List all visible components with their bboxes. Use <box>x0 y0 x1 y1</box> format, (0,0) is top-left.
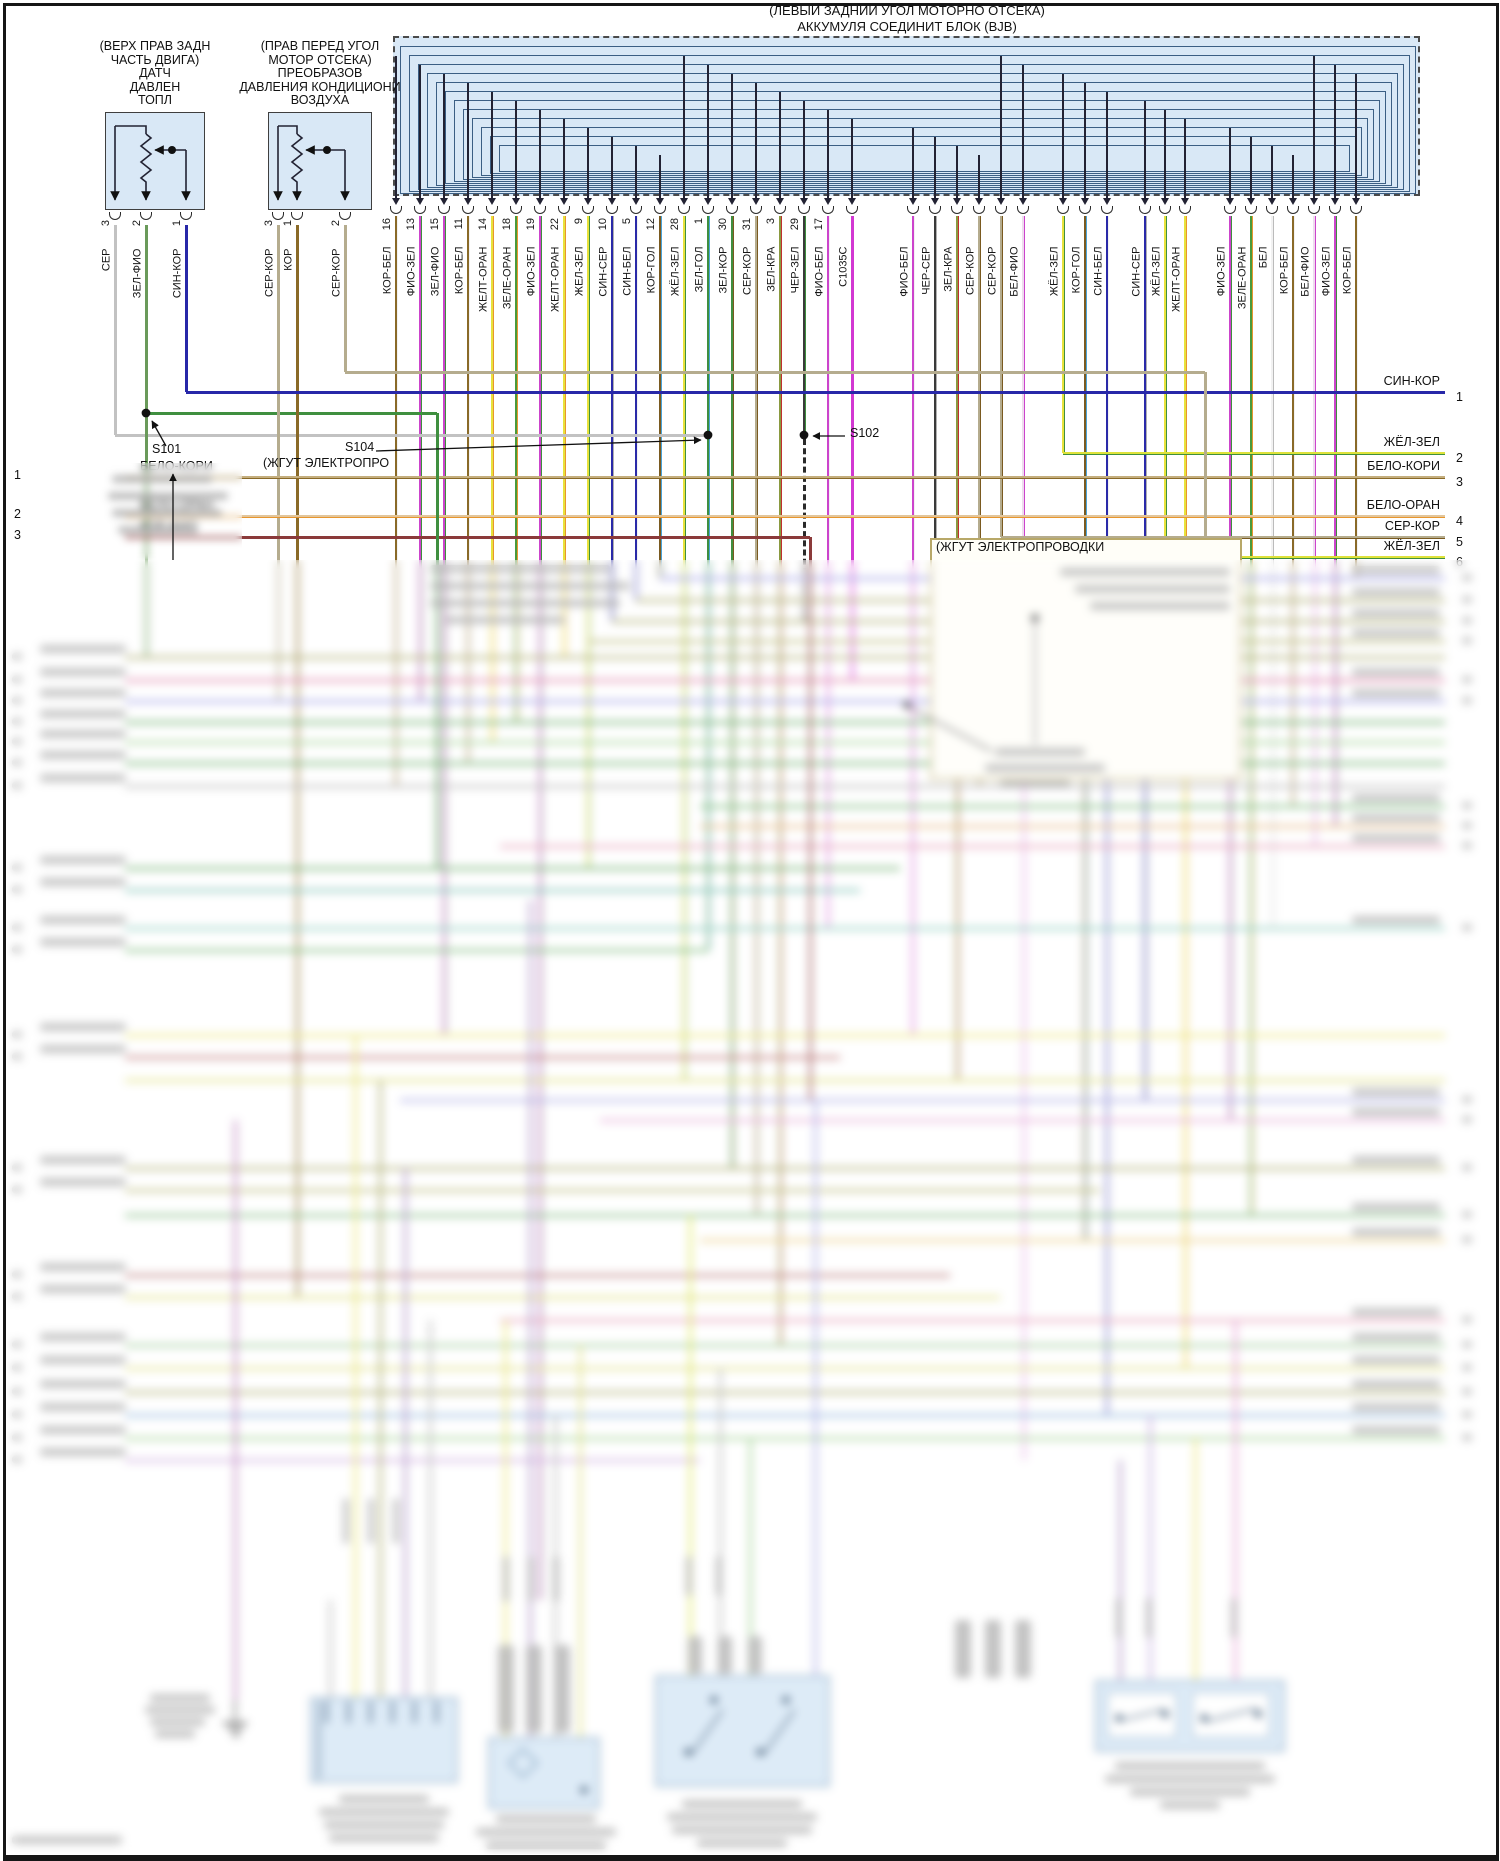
junction-dot <box>782 1696 790 1704</box>
connector-pin-arc <box>140 212 152 220</box>
bjb-wire <box>912 216 915 1035</box>
blurred-text-line <box>118 526 198 534</box>
blurred-wire-row <box>500 845 1445 848</box>
blurred-right-label <box>1352 1108 1440 1116</box>
bjb-wire-label: СИН-БЕЛ <box>620 246 634 361</box>
bjb-pin-arrow-line <box>443 74 445 198</box>
connector-pin-arc <box>1101 206 1113 214</box>
blurred-wire-row <box>125 889 860 892</box>
bjb-wire-label: БЕЛ-ФИО <box>1298 246 1312 361</box>
junction-dot <box>580 1786 588 1794</box>
blurred-right-number <box>1462 1116 1472 1123</box>
bjb-wire <box>755 216 758 1215</box>
blurred-left-label <box>40 1380 126 1388</box>
bjb-pin-number: 10 <box>596 218 610 248</box>
blurred-text-line <box>12 1836 122 1844</box>
connector-pin-arc <box>1329 206 1341 214</box>
connector-tick <box>369 1701 372 1723</box>
arrow-head-icon <box>1141 198 1149 205</box>
arrow-head-icon <box>1081 198 1089 205</box>
blurred-left-number <box>12 676 22 683</box>
connector-block <box>526 1645 542 1733</box>
blurred-left-number <box>12 759 22 766</box>
blurred-wire-row <box>125 679 1445 682</box>
blurred-text-line <box>430 565 610 573</box>
blurred-wire-row <box>125 1056 840 1059</box>
bjb-wire-label: ЧЕР-ЗЕЛ <box>788 246 802 361</box>
blurred-left-label <box>40 1045 126 1053</box>
blurred-right-label <box>1352 1156 1440 1164</box>
bjb-wire <box>827 216 830 928</box>
blurred-text-line <box>430 582 630 590</box>
blurred-vertical-label <box>503 1556 509 1602</box>
blurred-right-number <box>1462 842 1472 849</box>
blurred-wire-vertical <box>234 1120 237 1700</box>
blurred-right-label <box>1352 1203 1440 1211</box>
bjb-wire-label: ЗЕЛ-КОР <box>716 246 730 361</box>
blurred-wire-vertical <box>809 537 812 1100</box>
arrow-head-icon <box>953 198 961 205</box>
blurred-left-label <box>40 1403 126 1411</box>
blurred-wire-vertical <box>1149 1415 1152 1680</box>
bjb-pin-arrow-line <box>1164 110 1166 198</box>
blurred-right-number <box>1462 1316 1472 1323</box>
component-wire-label: СЕР-КОР <box>262 248 276 363</box>
right-row-label: СИН-КОР <box>1320 374 1440 388</box>
connector-block <box>748 1636 762 1674</box>
connector-pin-arc <box>907 206 919 214</box>
bjb-wire-label: ЗЕЛ-КРА <box>764 246 778 361</box>
blurred-left-label <box>40 668 126 676</box>
diagram-content: (ЛЕВЫЙ ЗАДНИЙ УГОЛ МОТОРНО ОТСЕКА) АККУМ… <box>0 0 1500 1861</box>
blurred-left-number <box>12 1164 22 1171</box>
bjb-pin-arrow-line <box>659 155 661 198</box>
bjb-wire-label: ФИО-БЕЛ <box>897 246 911 361</box>
arrow-head-icon <box>800 198 808 205</box>
bjb-pin-number: 3 <box>764 218 778 248</box>
arrow-head-icon <box>392 198 400 205</box>
right-row-label: ЖЁЛ-ЗЕЛ <box>1320 435 1440 449</box>
bjb-wire-label: ФИО-ЗЕЛ <box>1214 246 1228 361</box>
bjb-pin-number: 28 <box>668 218 682 248</box>
blurred-left-label <box>40 774 126 782</box>
blurred-left-number <box>12 697 22 704</box>
arrow-head-icon <box>909 198 917 205</box>
connector-pin-arc <box>1017 206 1029 214</box>
component-pin-number: 1 <box>170 220 184 250</box>
junction-dot <box>1115 1714 1123 1722</box>
bjb-wire <box>587 216 590 868</box>
junction-dot <box>684 1748 692 1756</box>
bjb-pin-arrow-line <box>1184 119 1186 198</box>
blurred-left-number <box>12 864 22 871</box>
right-row-label: БЕЛО-ОРАН <box>1320 498 1440 512</box>
blurred-vertical-label <box>1231 1598 1237 1638</box>
left-row-number: 1 <box>14 468 21 482</box>
connector-pin-arc <box>702 206 714 214</box>
connector-pin-arc <box>1079 206 1091 214</box>
harness-note: (ЖГУТ ЭЛЕКТРОПРОВОДКИ <box>936 540 1104 554</box>
left-row-number: 3 <box>14 528 21 542</box>
blurred-left-label <box>40 645 126 653</box>
blurred-wire-vertical <box>689 1215 692 1675</box>
blurred-left-number <box>12 1053 22 1060</box>
blurred-vertical-label <box>528 1556 534 1602</box>
bjb-wire-label: ЗЕЛЕ-ОРАН <box>500 246 514 361</box>
ground-symbol <box>229 1728 242 1731</box>
blurred-left-number <box>12 1293 22 1300</box>
arrow-head-icon <box>464 198 472 205</box>
bjb-wire-label: СЕР-КОР <box>740 246 754 361</box>
bjb-wire <box>1164 216 1167 557</box>
callout-line <box>1034 622 1036 745</box>
arrow-head-icon <box>997 198 1005 205</box>
blurred-text-line <box>995 748 1085 756</box>
right-row-label: БЕЛО-КОРИ <box>1320 459 1440 473</box>
bjb-pin-arrow-line <box>1229 128 1231 198</box>
connector-tick <box>318 1701 320 1779</box>
blurred-right-number <box>1462 617 1472 624</box>
blurred-text-line <box>112 475 212 483</box>
bjb-pin-arrow-line <box>827 110 829 198</box>
connector-tick <box>347 1701 350 1723</box>
bjb-wire-label: ЖЁЛ-ЗЕЛ <box>1149 246 1163 361</box>
blurred-wire-vertical <box>436 413 439 868</box>
component-pin-number: 2 <box>130 220 144 250</box>
blurred-wire-row <box>125 1367 1445 1370</box>
blurred-right-number <box>1462 1388 1472 1395</box>
blurred-text-line <box>1115 1762 1265 1770</box>
blurred-left-label <box>40 1333 126 1341</box>
blurred-wire-vertical <box>379 1080 382 1697</box>
potentiometer-symbol <box>268 112 372 210</box>
blurred-text-line <box>445 616 565 624</box>
blurred-left-number <box>12 1434 22 1441</box>
wire-horizontal <box>345 371 1205 374</box>
blurred-text-line <box>329 1834 439 1842</box>
blurred-right-label <box>1352 1356 1440 1364</box>
bjb-pin-arrow-line <box>611 137 613 198</box>
bjb-wire-label: C1035C <box>836 246 850 361</box>
bjb-pin-arrow-line <box>978 155 980 198</box>
blurred-text-line <box>1075 585 1230 593</box>
blurred-right-number <box>1462 1164 1472 1171</box>
bjb-pin-number: 11 <box>452 218 466 248</box>
blurred-text-line <box>155 1730 195 1738</box>
connector-pin-arc <box>1266 206 1278 214</box>
blurred-vertical-label <box>716 1556 722 1596</box>
blurred-right-number <box>1462 822 1472 829</box>
blurred-text-line <box>1105 1775 1275 1783</box>
blurred-right-label <box>1352 1088 1440 1096</box>
bjb-pin-arrow-line <box>707 65 709 198</box>
bjb-wire <box>515 216 518 722</box>
blurred-wire-row <box>125 700 1445 703</box>
blurred-wire-vertical <box>354 1035 357 1697</box>
blurred-right-number <box>1462 1364 1472 1371</box>
connector-pin-arc <box>654 206 666 214</box>
blurred-right-label <box>1352 668 1440 676</box>
arrow-head-icon <box>1268 198 1276 205</box>
arrow-head-icon <box>440 198 448 205</box>
bjb-pin-arrow-line <box>755 83 757 198</box>
component-pin-number: 3 <box>262 220 276 250</box>
connector-pin-arc <box>798 206 810 214</box>
bjb-pin-number: 12 <box>644 218 658 248</box>
bjb-wire-label: КОР-ГОЛ <box>644 246 658 361</box>
blurred-left-label <box>40 1426 126 1434</box>
component-label-line: ВОЗДУХА <box>210 94 430 108</box>
junction-dot <box>1200 1714 1208 1722</box>
connector-pin-arc <box>973 206 985 214</box>
left-row-number: 2 <box>14 507 21 521</box>
connector-block <box>1015 1620 1031 1678</box>
bjb-wire <box>803 216 806 435</box>
bottom-component-box-2 <box>488 1737 600 1809</box>
bjb-pin-arrow-line <box>491 92 493 198</box>
blurred-wire-row <box>125 1344 1445 1347</box>
ground-symbol <box>234 1700 236 1722</box>
blurred-right-label <box>1352 1380 1440 1388</box>
bjb-wire <box>1022 216 1025 1460</box>
bjb-wire-label: КОР-БЕЛ <box>1340 246 1354 361</box>
arrow-head-icon <box>824 198 832 205</box>
ground-symbol <box>233 1734 239 1737</box>
bjb-wire <box>1062 216 1065 453</box>
blurred-wire-row <box>125 1079 1445 1082</box>
connector-pin-arc <box>1245 206 1257 214</box>
connector-pin-arc <box>726 206 738 214</box>
connector-pin-arc <box>1224 206 1236 214</box>
connector-pin-arc <box>438 206 450 214</box>
blurred-left-label <box>40 878 126 886</box>
connector-block <box>718 1636 732 1674</box>
connector-pin-arc <box>750 206 762 214</box>
connector-pin-arc <box>414 206 426 214</box>
bjb-wire <box>611 216 614 621</box>
splice-label-s104: S104 <box>345 440 374 454</box>
blurred-left-number <box>12 1031 22 1038</box>
connector-pin-arc <box>180 212 192 220</box>
blurred-left-label <box>40 710 126 718</box>
connector-pin-arc <box>630 206 642 214</box>
wire-vertical <box>114 225 117 435</box>
connector-pin-arc <box>1287 206 1299 214</box>
arrow-head-icon <box>416 198 424 205</box>
bjb-pin-arrow-line <box>779 92 781 198</box>
wire-dashed-continuation <box>803 439 806 620</box>
bjb-pin-number: 5 <box>620 218 634 248</box>
blurred-right-number <box>1462 1236 1472 1243</box>
bjb-pin-number: 13 <box>404 218 418 248</box>
blurred-text-line <box>672 1826 812 1834</box>
blurred-text-line <box>697 1839 787 1847</box>
connector-pin-arc <box>951 206 963 214</box>
bjb-wire-label: ЖЁЛ-ЗЕЛ <box>1047 246 1061 361</box>
blurred-wire-row <box>125 1167 1445 1170</box>
blurred-text-line <box>324 1821 444 1829</box>
blurred-text-line <box>496 1815 596 1823</box>
bjb-pin-arrow-line <box>467 83 469 198</box>
blurred-wire-row <box>125 785 1445 788</box>
bjb-wire-label: ЖЕЛТ-ОРАН <box>476 246 490 361</box>
bjb-pin-arrow-line <box>1355 74 1357 198</box>
potentiometer-symbol <box>105 112 205 210</box>
blurred-right-label <box>1352 1333 1440 1341</box>
connector-block <box>955 1620 971 1678</box>
blurred-right-label <box>1352 814 1440 822</box>
blurred-text-line <box>108 492 228 500</box>
bjb-pin-arrow-line <box>1313 56 1315 198</box>
blurred-left-label <box>40 938 126 946</box>
blurred-right-label <box>1352 834 1440 842</box>
bjb-wire <box>635 216 638 600</box>
blurred-left-number <box>12 1388 22 1395</box>
bjb-pin-number: 9 <box>572 218 586 248</box>
bjb-pin-arrow-line <box>539 110 541 198</box>
connector-pin-arc <box>1308 206 1320 214</box>
blurred-left-number <box>12 782 22 789</box>
connector-tick <box>413 1701 416 1723</box>
bjb-pin-number: 22 <box>548 218 562 248</box>
junction-dot <box>1031 614 1039 622</box>
bjb-pin-arrow-line <box>1062 74 1064 198</box>
bjb-wire-label: СЕР-КОР <box>985 246 999 361</box>
right-row-number: 6 <box>1456 555 1463 569</box>
bjb-pin-arrow-line <box>1292 155 1294 198</box>
bjb-wire-label: КОР-БЕЛ <box>452 246 466 361</box>
arrow-head-icon <box>608 198 616 205</box>
bjb-pin-number: 1 <box>692 218 706 248</box>
wire-row-right <box>125 476 1445 479</box>
blurred-vertical-label <box>1146 1598 1152 1638</box>
connector-pin-arc <box>558 206 570 214</box>
arrow-head-icon <box>975 198 983 205</box>
wire-row-right <box>1063 452 1445 455</box>
blurred-right-number <box>1462 697 1472 704</box>
component-wire-label: СЕР-КОР <box>329 248 343 363</box>
bjb-wire-label: БЕЛ <box>1256 246 1270 361</box>
junction-dot <box>1254 1710 1262 1718</box>
junction-dot <box>710 1696 718 1704</box>
bjb-wire-label: ЗЕЛЕ-ОРАН <box>1235 246 1249 361</box>
blurred-wire-row <box>125 721 1445 724</box>
blurred-wire-row <box>500 1319 1445 1322</box>
bjb-pin-number: 31 <box>740 218 754 248</box>
bjb-wire-label: КОР-ГОЛ <box>1069 246 1083 361</box>
blurred-wire-row <box>125 1437 1445 1440</box>
blurred-vertical-label <box>686 1556 692 1596</box>
component-pin-number: 3 <box>99 220 113 250</box>
bjb-pin-arrow-line <box>1271 146 1273 198</box>
blurred-text-line <box>430 599 620 607</box>
bjb-wire-label: ФИО-ЗЕЛ <box>404 246 418 361</box>
blurred-wire-row <box>125 741 1445 744</box>
bjb-title-line2: АККУМУЛЯ СОЕДИНИТ БЛОК (BJB) <box>607 19 1207 35</box>
blurred-left-number <box>12 946 22 953</box>
component-wire-label: ЗЕЛ-ФИО <box>130 248 144 363</box>
bjb-wire-label: ЖЁЛ-ЗЕЛ <box>668 246 682 361</box>
bjb-busbar-rect <box>499 145 1350 172</box>
bjb-wire <box>707 216 710 950</box>
blurred-left-number <box>12 1271 22 1278</box>
component-pin-number: 2 <box>329 220 343 250</box>
blurred-right-label <box>1352 609 1440 617</box>
bjb-wire-label: ЗЕЛ-ГОЛ <box>692 246 706 361</box>
wire-vertical <box>296 225 299 1297</box>
wire-vertical <box>145 225 148 657</box>
connector-pin-arc <box>390 206 402 214</box>
connector-block <box>554 1645 570 1733</box>
connector-pin-arc <box>272 212 284 220</box>
blurred-left-label <box>40 1356 126 1364</box>
blurred-wire-row <box>125 1274 950 1277</box>
blurred-left-number <box>12 1411 22 1418</box>
bjb-pin-arrow-line <box>683 56 685 198</box>
component-label-line: (ПРАВ ПЕРЕД УГОЛ <box>210 40 430 54</box>
bjb-wire <box>443 216 446 1035</box>
right-row-label: СЕР-КОР <box>1320 519 1440 533</box>
bjb-pin-number: 15 <box>428 218 442 248</box>
arrow-head-icon <box>1181 198 1189 205</box>
bjb-pin-arrow-line <box>1000 56 1002 198</box>
arrow-head-icon <box>632 198 640 205</box>
blurred-wire-row <box>125 1296 1000 1299</box>
blurred-wire-row <box>125 1414 1445 1417</box>
component-label-line: МОТОР ОТСЕКА) <box>210 54 430 68</box>
bjb-title-line1: (ЛЕВЫЙ ЗАДНИЙ УГОЛ МОТОРНО ОТСЕКА) <box>607 3 1207 19</box>
blurred-wire-row <box>125 1214 1445 1217</box>
connector-pin-arc <box>582 206 594 214</box>
blurred-wire-vertical <box>814 1100 817 1675</box>
blurred-left-label <box>40 1285 126 1293</box>
connector-pin-arc <box>995 206 1007 214</box>
arrow-head-icon <box>656 198 664 205</box>
bjb-wire <box>1184 216 1187 1368</box>
arrow-head-icon <box>704 198 712 205</box>
blurred-left-number <box>12 718 22 725</box>
bjb-wire-label: СИН-БЕЛ <box>1091 246 1105 361</box>
bjb-pin-number: 17 <box>812 218 826 248</box>
connector-pin-arc <box>510 206 522 214</box>
arrow-head-icon <box>488 198 496 205</box>
right-row-number: 5 <box>1456 535 1463 549</box>
bjb-pin-arrow-line <box>912 128 914 198</box>
blurred-wire-row <box>700 1239 1445 1242</box>
arrow-head-icon <box>680 198 688 205</box>
bjb-pin-arrow-line <box>1334 65 1336 198</box>
bjb-wire-label: КОР-БЕЛ <box>380 246 394 361</box>
blurred-wire-vertical <box>579 1345 582 1737</box>
blurred-right-number <box>1462 676 1472 683</box>
blurred-left-number <box>12 738 22 745</box>
bjb-pin-arrow-line <box>1084 83 1086 198</box>
bjb-wire-label: ФИО-ЗЕЛ <box>1319 246 1333 361</box>
connector-tick <box>391 1701 394 1723</box>
connector-pin-arc <box>822 206 834 214</box>
blurred-vertical-label <box>1116 1598 1122 1638</box>
blurred-text-line <box>1090 602 1230 610</box>
component-label-line: ДАВЛЕНИЯ КОНДИЦИОНИ <box>210 81 430 95</box>
blurred-text-line <box>682 1800 802 1808</box>
blurred-right-number <box>1462 574 1472 581</box>
blurred-right-number <box>1462 1211 1472 1218</box>
bjb-wire-label: ФИО-ЗЕЛ <box>524 246 538 361</box>
blurred-left-label <box>40 1023 126 1031</box>
bjb-wire <box>491 216 494 742</box>
splice-label-s101: S101 <box>152 442 181 456</box>
blurred-right-label <box>1352 794 1440 802</box>
